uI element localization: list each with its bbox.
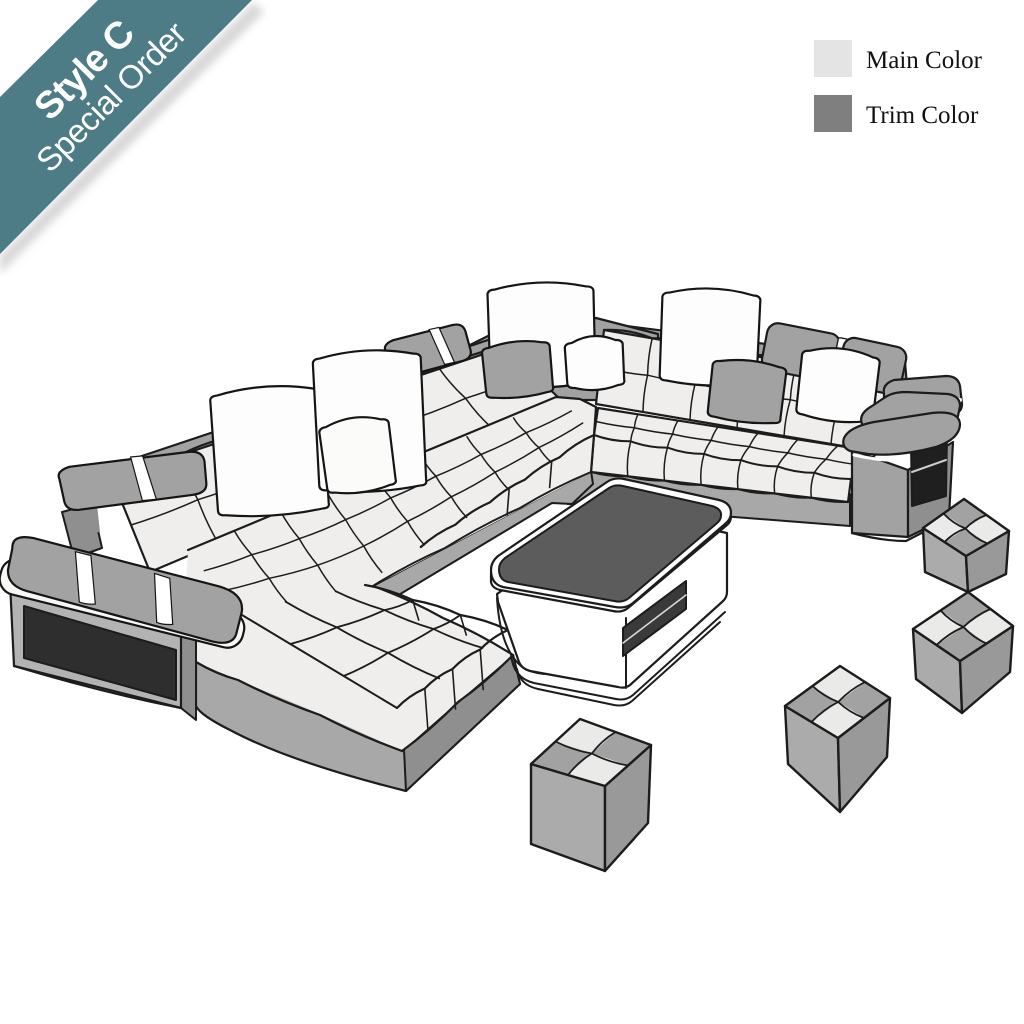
svg-text:Trim Color: Trim Color — [866, 102, 979, 129]
svg-text:Main Color: Main Color — [866, 47, 983, 74]
